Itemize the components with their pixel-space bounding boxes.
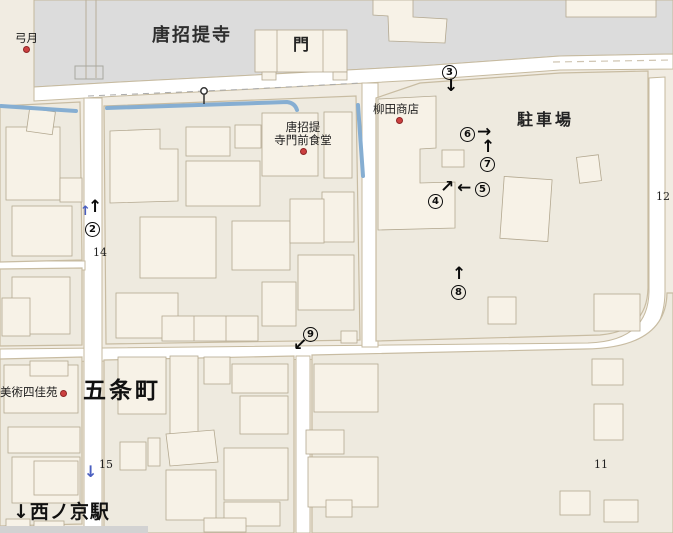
label-gate: 門 [293,36,309,54]
poi-dot-yumizuki [23,46,30,53]
poi-dot-yanagida [396,117,403,124]
label-station-name: 西ノ京駅 [30,501,110,523]
marker-7[interactable]: 7 [480,157,495,172]
route-blue-down-arrow-icon: ↓ [84,464,97,480]
label-toshodaiji: 唐招提寺 [152,26,232,46]
label-station: ↓西ノ京駅 [13,502,110,523]
label-gojo-cho: 五条町 [83,378,161,403]
marker-9-arrow-icon: ↙ [293,337,307,354]
label-restaurant: 唐招提 寺門前食堂 [267,121,339,147]
marker-5[interactable]: 5 [475,182,490,197]
marker-7-arrow-icon: ↑ [481,139,495,156]
label-block-15: 15 [99,459,113,471]
label-parking-lot: 駐車場 [517,111,574,129]
label-yumizuki: 弓月 [15,32,38,45]
marker-8-arrow-icon: ↑ [452,266,466,283]
label-bijutsu-shikaen: 美術四佳苑 [0,386,58,399]
label-block-14: 14 [93,247,107,259]
marker-5-arrow-icon: ← [457,180,471,197]
poi-dot-restaurant [300,148,307,155]
marker-3-arrow-icon: ↓ [444,78,458,95]
label-restaurant-line2: 寺門前食堂 [267,134,339,147]
marker-6[interactable]: 6 [460,127,475,142]
marker-8[interactable]: 8 [451,285,466,300]
map-canvas: 弓月 唐招提寺 門 柳田商店 唐招提 寺門前食堂 駐車場 五条町 美術四佳苑 ↓… [0,0,673,533]
poi-dot-bijutsu [60,390,67,397]
label-yanagida-shop: 柳田商店 [373,103,419,116]
marker-2[interactable]: 2 [85,222,100,237]
marker-2-blue-arrow-icon: ↑ [80,205,91,218]
marker-4-arrow-icon: ↗ [440,179,454,196]
label-block-12: 12 [656,191,670,203]
station-down-arrow-icon: ↓ [13,501,30,523]
base-map [0,0,673,533]
railway-strip [0,526,148,533]
label-block-11: 11 [594,459,608,471]
